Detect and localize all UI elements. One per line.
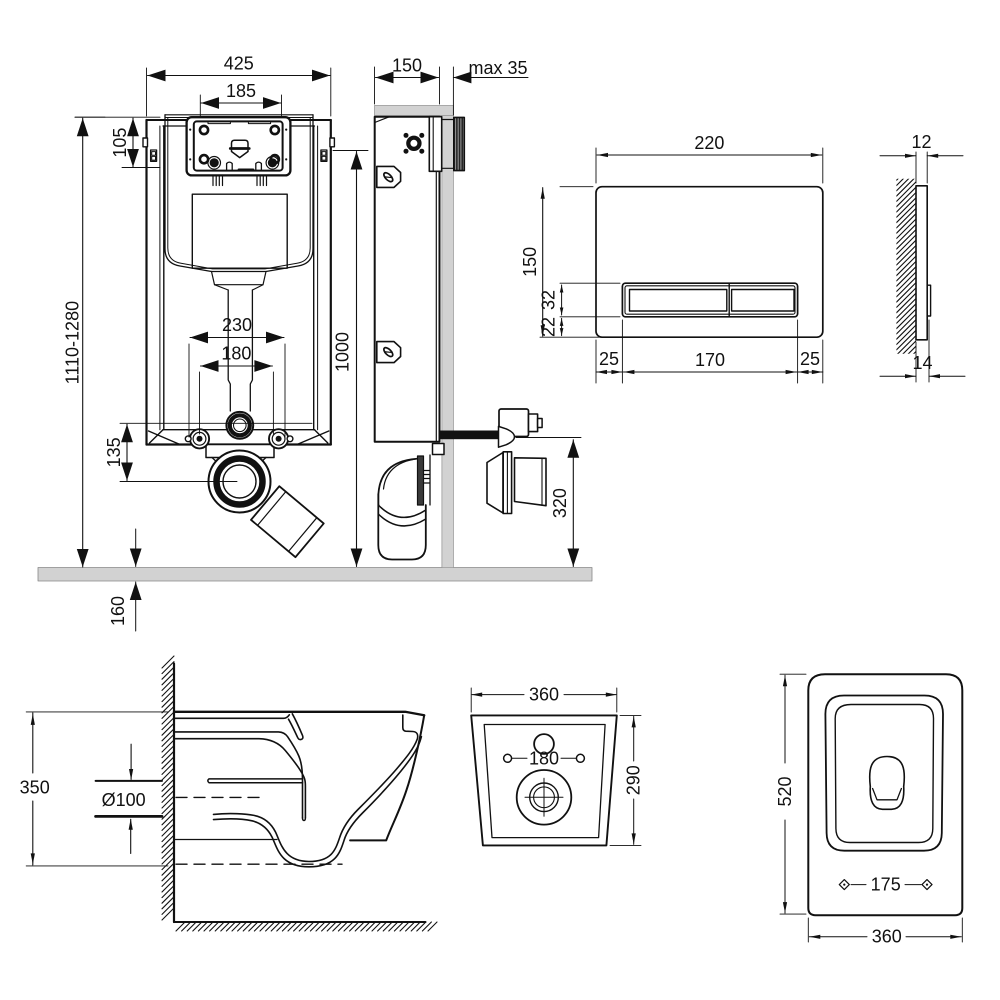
svg-text:160: 160 xyxy=(108,596,128,626)
svg-text:180: 180 xyxy=(529,749,559,769)
svg-text:32: 32 xyxy=(539,290,559,310)
svg-text:320: 320 xyxy=(550,488,570,518)
svg-text:180: 180 xyxy=(221,344,251,364)
svg-text:135: 135 xyxy=(104,437,124,467)
svg-text:Ø100: Ø100 xyxy=(102,790,146,810)
svg-text:220: 220 xyxy=(694,133,724,153)
svg-text:185: 185 xyxy=(226,81,256,101)
svg-text:22: 22 xyxy=(539,317,559,337)
svg-text:150: 150 xyxy=(392,56,422,76)
svg-text:12: 12 xyxy=(911,132,931,152)
svg-text:25: 25 xyxy=(599,349,619,369)
svg-text:150: 150 xyxy=(520,247,540,277)
svg-text:360: 360 xyxy=(872,926,902,946)
svg-text:350: 350 xyxy=(20,778,50,798)
svg-text:25: 25 xyxy=(800,349,820,369)
svg-text:105: 105 xyxy=(110,128,130,158)
svg-text:1000: 1000 xyxy=(333,332,353,372)
svg-text:1110-1280: 1110-1280 xyxy=(63,301,83,384)
svg-text:14: 14 xyxy=(912,353,932,373)
svg-text:520: 520 xyxy=(775,776,795,806)
svg-text:175: 175 xyxy=(871,875,901,895)
svg-text:230: 230 xyxy=(222,315,252,335)
svg-text:max 35: max 35 xyxy=(468,58,527,78)
svg-text:170: 170 xyxy=(695,350,725,370)
svg-text:360: 360 xyxy=(529,685,559,705)
svg-text:425: 425 xyxy=(224,54,254,74)
svg-text:290: 290 xyxy=(624,765,644,795)
